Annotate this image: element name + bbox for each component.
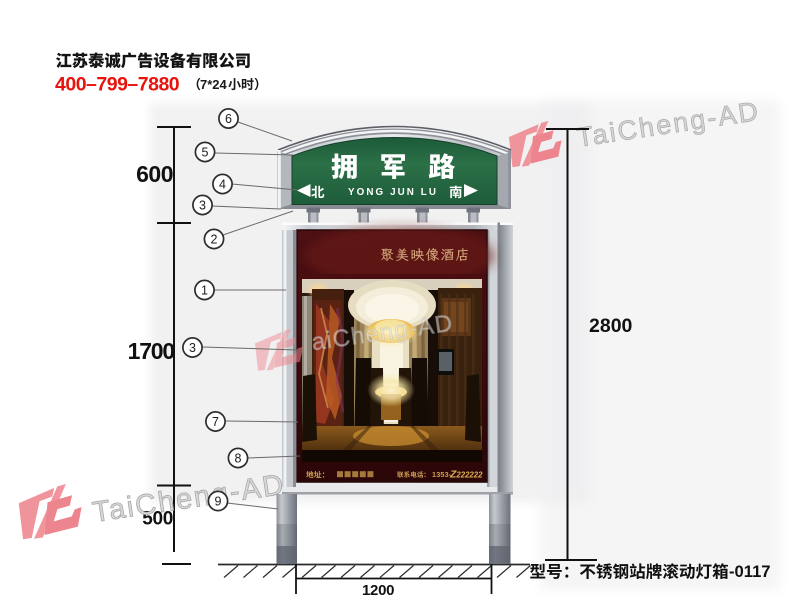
svg-text:9: 9	[215, 494, 222, 508]
svg-text:400–799–7880: 400–799–7880	[55, 74, 180, 96]
svg-text:1353-: 1353-	[432, 470, 452, 479]
svg-text:YONG JUN LU: YONG JUN LU	[348, 187, 438, 198]
svg-text:6: 6	[225, 112, 232, 126]
svg-text:600: 600	[136, 161, 173, 187]
svg-text:2: 2	[211, 232, 218, 246]
svg-text:2800: 2800	[589, 315, 633, 337]
svg-text:-0117: -0117	[729, 562, 771, 581]
svg-text:7*24: 7*24	[200, 77, 228, 92]
svg-text:1700: 1700	[128, 338, 175, 364]
svg-text:4: 4	[219, 177, 226, 191]
svg-text:8: 8	[235, 451, 242, 465]
svg-text:Z222222: Z222222	[449, 469, 483, 481]
svg-text:5: 5	[202, 145, 209, 159]
svg-text:3: 3	[189, 341, 196, 355]
svg-text:1200: 1200	[362, 582, 394, 599]
svg-text:7: 7	[212, 415, 219, 429]
svg-text:3: 3	[199, 198, 206, 212]
svg-text:1: 1	[201, 283, 208, 297]
